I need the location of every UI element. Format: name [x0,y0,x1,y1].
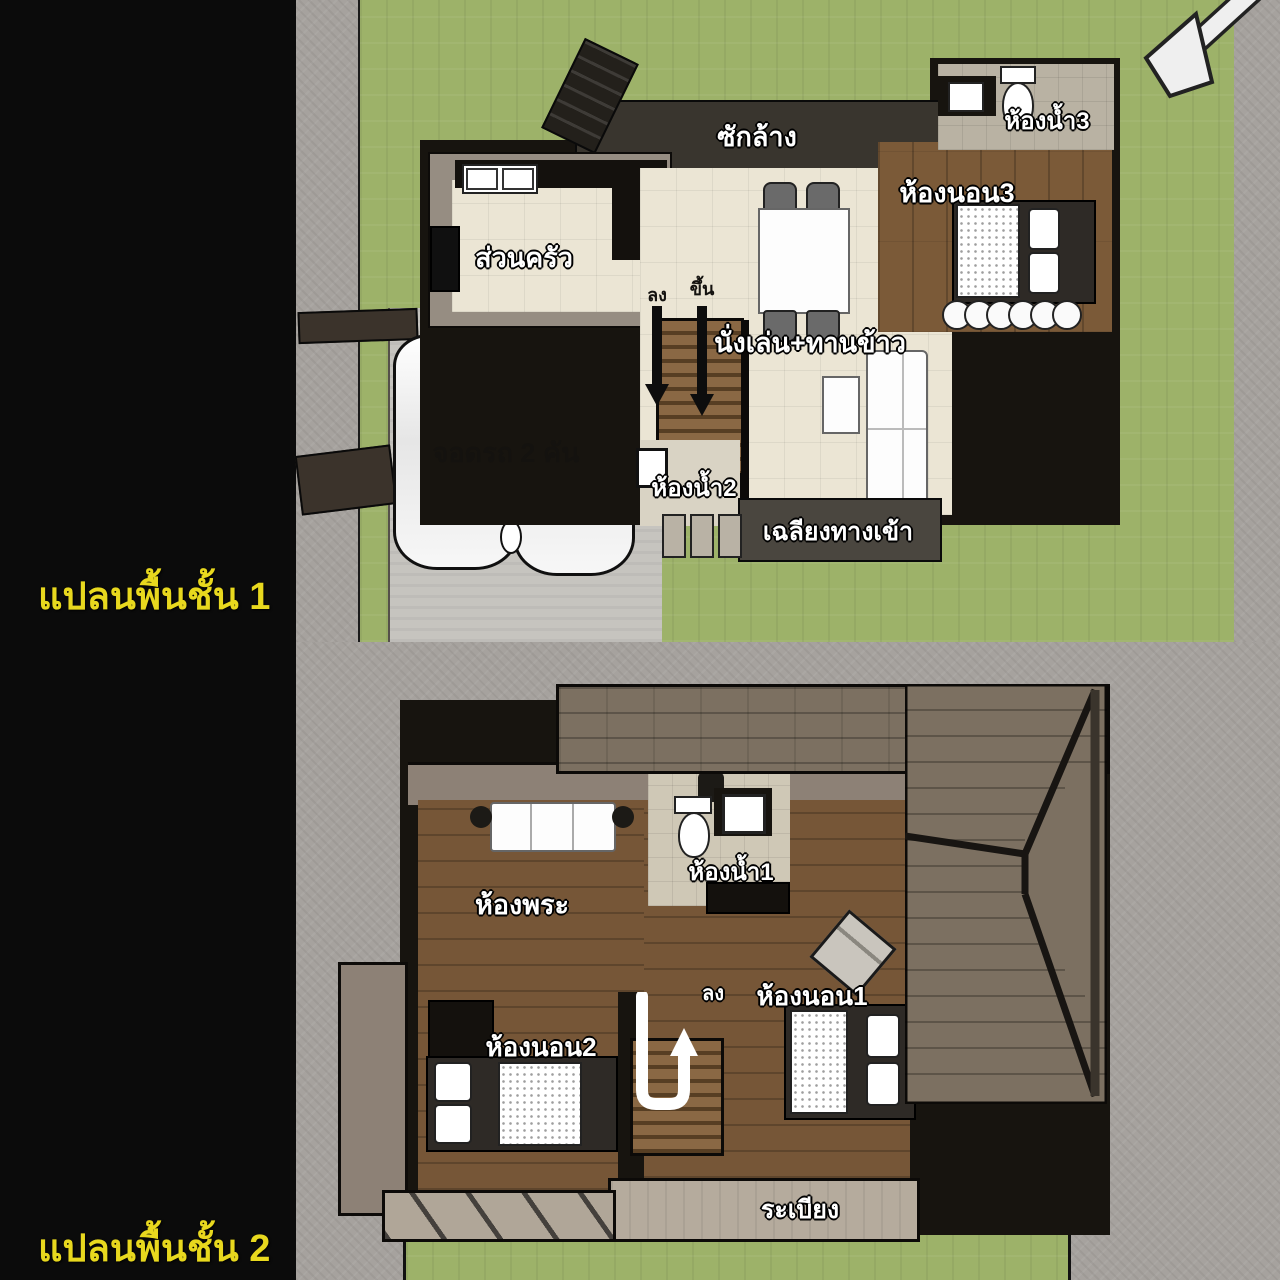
bed1-pillow [866,1014,900,1058]
room-label-balcony: ระเบียง [761,1198,839,1223]
kitchen-sink [462,164,538,194]
bathroom1-sink [722,794,766,834]
hedge-bushes [950,300,1100,330]
bed2-mattress [498,1062,582,1146]
room-label-bedroom1: ห้องนอน1 [756,983,867,1009]
plan2-title: แปลนพื้นชั้น 2 [38,1230,270,1268]
altar-plant [612,806,634,828]
side-terrace [382,1190,616,1242]
room-label-bedroom3: ห้องนอน3 [899,180,1014,207]
altar-plant [470,806,492,828]
room-label-bathroom1: ห้องน้ำ1 [688,861,773,885]
stairs1-down-label: ลง [647,286,667,304]
bed1-mattress [790,1010,848,1114]
hip-roof [905,684,1107,1104]
coffee-table [822,376,860,434]
altar-bench [490,802,616,852]
porch-step [718,514,742,558]
gate-beam-lower [295,444,398,515]
room-label-bathroom3: ห้องน้ำ3 [1004,110,1089,134]
north-arrow-icon [1130,0,1280,110]
room-label-living-dining: นั่งเล่น+ทานข้าว [714,330,906,357]
gate-beam-upper [297,308,418,344]
hall-cabinet [706,882,790,914]
stairs1-up-label: ขึ้น [690,280,715,298]
dining-table [758,208,850,314]
sofa [866,350,928,506]
bed3-pillow [1028,208,1060,250]
room-label-bathroom2: ห้องน้ำ2 [651,477,736,501]
room-label-kitchen: ส่วนครัว [475,245,573,272]
room-label-prayer: ห้องพระ [475,892,569,919]
bedroom2-cabinet [428,1000,494,1058]
bed2-pillow [434,1062,472,1102]
bed3-mattress [956,204,1020,298]
bed2-pillow [434,1104,472,1144]
porch-step [662,514,686,558]
car-mirror [500,520,522,554]
toilet1-bowl [678,812,710,858]
white-u-turn-arrow-icon [630,992,705,1117]
black-down-arrow-icons [645,306,720,426]
room-label-bedroom2: ห้องนอน2 [485,1034,596,1060]
plan1-title: แปลนพื้นชั้น 1 [38,578,270,616]
porch-step [690,514,714,558]
floorplan-poster: ซักล้าง ส่วนครัว ห้องน้ำ3 ห้องนอน3 นั่งเ… [0,0,1280,1280]
stairs2-down-label: ลง [702,984,724,1004]
room-label-laundry: ซักล้าง [717,124,797,151]
room-label-entrance-porch: เฉลียงทางเข้า [763,520,913,545]
house2-left-wall-panel [338,962,408,1216]
stove [430,226,460,292]
bed1-pillow [866,1062,900,1106]
bed3-pillow [1028,252,1060,294]
bathroom3-sink [948,82,984,112]
parking-label: จอดรถ 2 คัน [433,440,580,467]
